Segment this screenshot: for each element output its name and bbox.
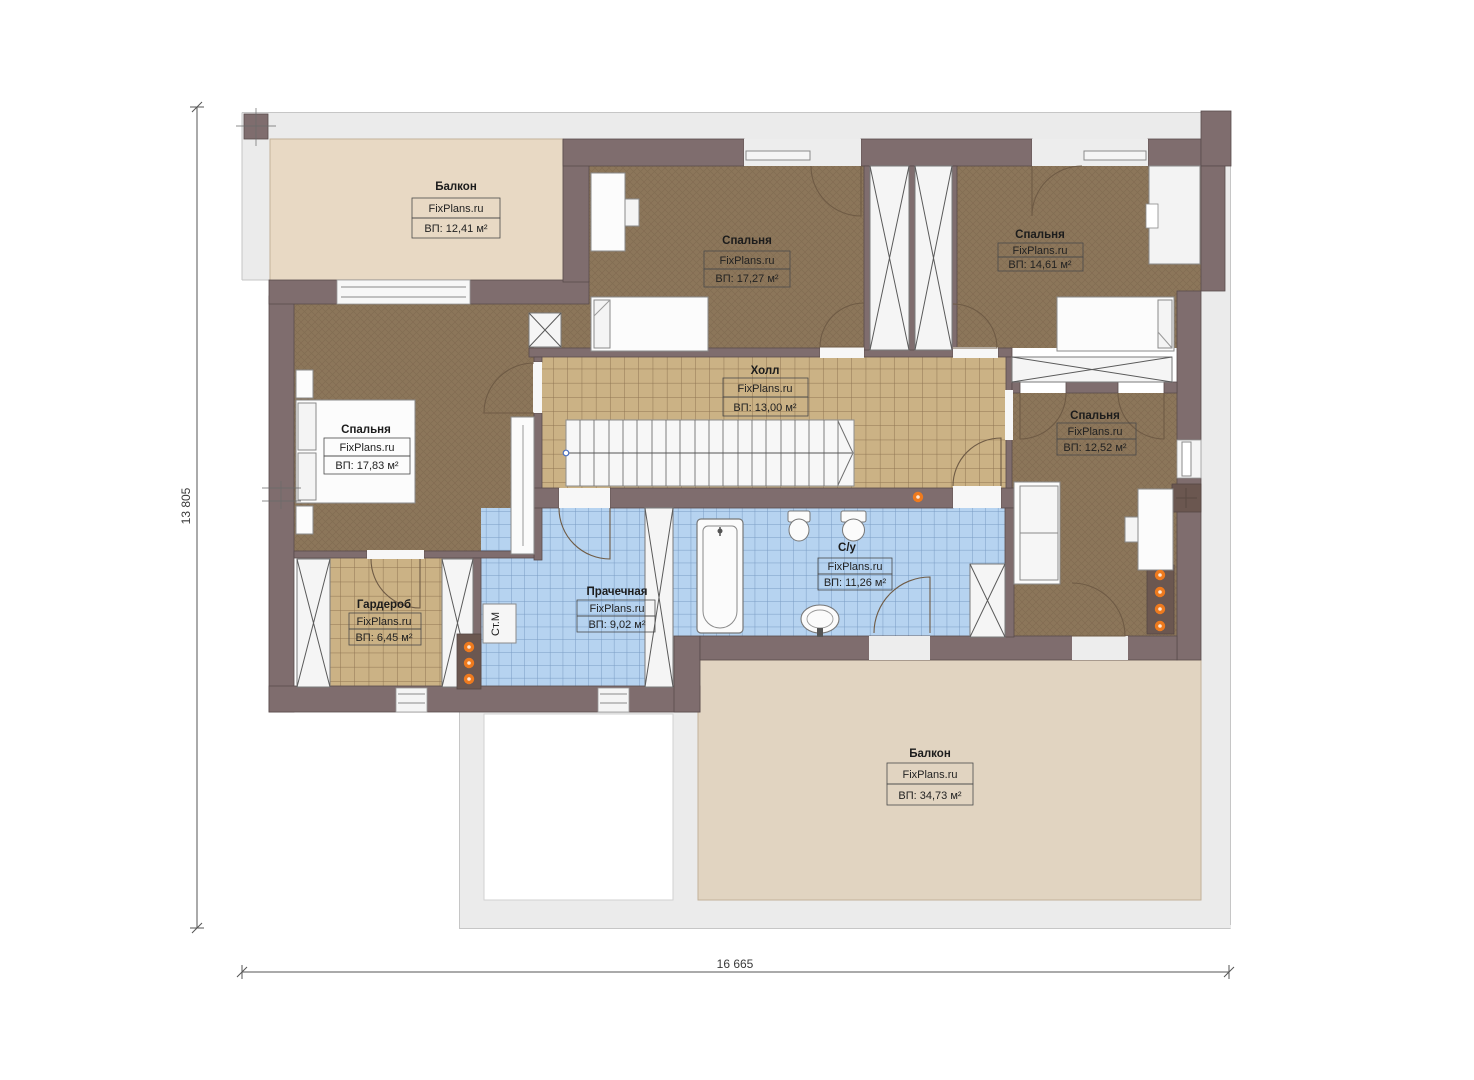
svg-text:ВП: 17,27 м²: ВП: 17,27 м² [715, 273, 779, 285]
svg-text:ВП: 12,52 м²: ВП: 12,52 м² [1063, 442, 1127, 454]
svg-text:16 665: 16 665 [717, 957, 754, 971]
svg-text:FixPlans.ru: FixPlans.ru [902, 769, 957, 781]
svg-text:FixPlans.ru: FixPlans.ru [719, 255, 774, 267]
svg-text:Прачечная: Прачечная [587, 586, 648, 598]
svg-text:FixPlans.ru: FixPlans.ru [339, 442, 394, 454]
svg-text:Ст.М: Ст.М [490, 612, 502, 636]
svg-text:С/у: С/у [838, 542, 857, 554]
svg-text:Гардероб: Гардероб [357, 599, 411, 611]
svg-text:FixPlans.ru: FixPlans.ru [589, 603, 644, 615]
svg-text:ВП: 17,83 м²: ВП: 17,83 м² [335, 460, 399, 472]
svg-text:FixPlans.ru: FixPlans.ru [428, 203, 483, 215]
svg-text:Холл: Холл [751, 365, 780, 377]
svg-text:FixPlans.ru: FixPlans.ru [1012, 245, 1067, 257]
svg-text:Спальня: Спальня [1070, 410, 1120, 422]
svg-text:ВП: 13,00 м²: ВП: 13,00 м² [733, 402, 797, 414]
svg-text:Спальня: Спальня [341, 424, 391, 436]
svg-text:ВП: 6,45 м²: ВП: 6,45 м² [355, 632, 412, 644]
svg-text:ВП: 34,73 м²: ВП: 34,73 м² [898, 790, 962, 802]
svg-text:FixPlans.ru: FixPlans.ru [356, 616, 411, 628]
svg-text:FixPlans.ru: FixPlans.ru [827, 561, 882, 573]
svg-text:ВП: 12,41 м²: ВП: 12,41 м² [424, 223, 488, 235]
svg-text:Балкон: Балкон [909, 748, 951, 760]
svg-text:ВП: 11,26 м²: ВП: 11,26 м² [824, 577, 887, 589]
svg-text:Спальня: Спальня [722, 235, 772, 247]
svg-text:FixPlans.ru: FixPlans.ru [1067, 426, 1122, 438]
svg-text:13 805: 13 805 [179, 487, 193, 524]
svg-text:Балкон: Балкон [435, 181, 477, 193]
svg-text:ВП: 14,61 м²: ВП: 14,61 м² [1008, 259, 1072, 271]
svg-text:Спальня: Спальня [1015, 229, 1065, 241]
svg-text:ВП: 9,02 м²: ВП: 9,02 м² [588, 619, 645, 631]
svg-text:FixPlans.ru: FixPlans.ru [737, 383, 792, 395]
